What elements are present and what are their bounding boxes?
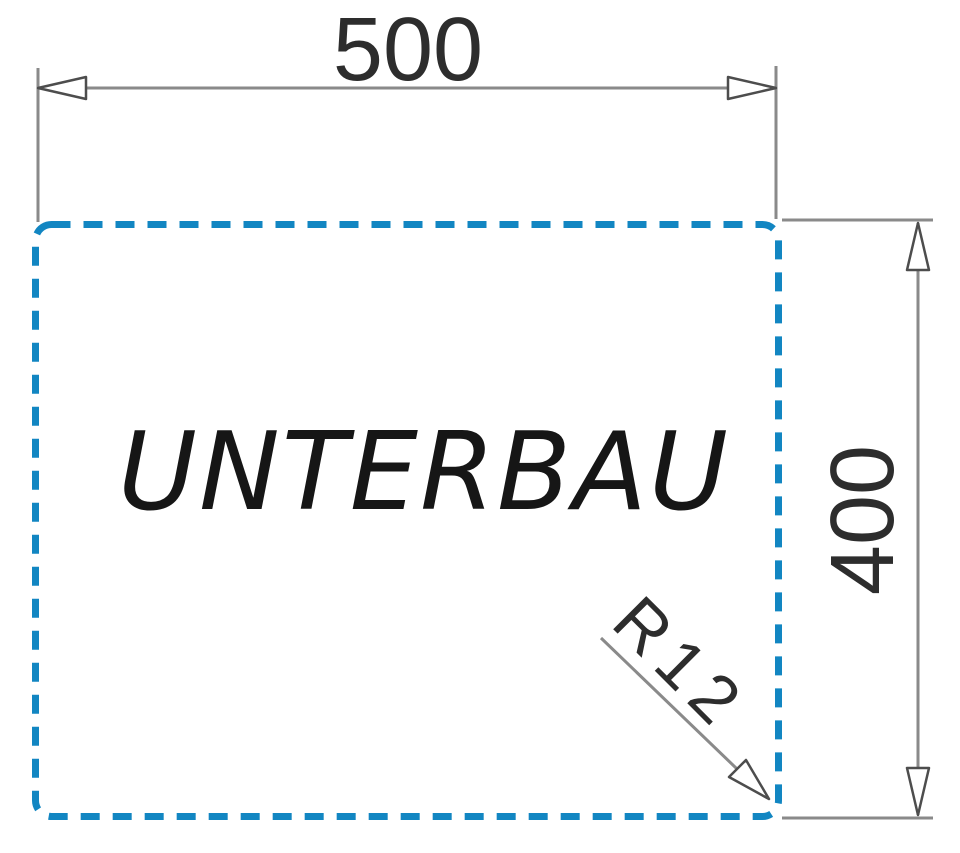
arrow-left-icon [38,77,86,99]
cabinet-label: UNTERBAU [118,410,730,535]
width-dimension: 500 [38,0,776,222]
arrow-up-icon [907,223,929,270]
width-dimension-value: 500 [333,0,483,100]
radius-value: R12 [599,582,762,745]
radius-callout: R12 [599,582,769,799]
height-dimension-value: 400 [813,445,913,595]
technical-drawing-canvas: UNTERBAU 500 400 [0,0,960,853]
arrow-down-icon [907,768,929,815]
unterbau-dimension-diagram: UNTERBAU 500 400 [0,0,960,853]
arrow-right-icon [728,77,776,99]
height-dimension: 400 [782,220,933,818]
